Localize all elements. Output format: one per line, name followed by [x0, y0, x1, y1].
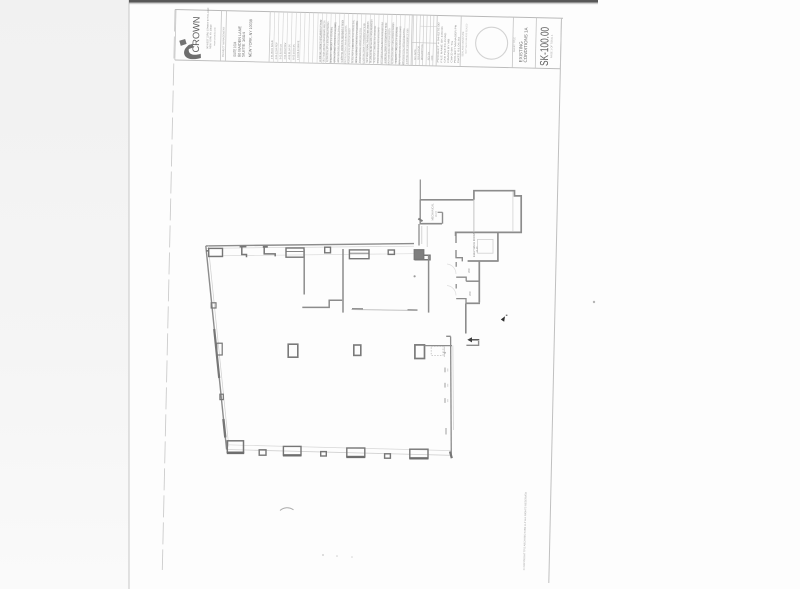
svg-text:16-08: 16-08 [477, 246, 479, 253]
svg-text:PAGE 1 OF TOTAL 1: PAGE 1 OF TOTAL 1 [550, 34, 554, 58]
svg-text:SEAL AND SIGNATURE: SEAL AND SIGNATURE [461, 31, 465, 57]
svg-text:NO. DATE: NO. DATE [414, 49, 417, 60]
svg-text:4 02.19.04 REV: 4 02.19.04 REV [284, 42, 287, 59]
svg-text:2 01.12.04 REV: 2 01.12.04 REV [275, 42, 278, 59]
svg-text:B 03.10.04 SK: B 03.10.04 SK [292, 44, 295, 60]
svg-text:16-07: 16-07 [436, 210, 438, 217]
svg-text:3 02.02.04 CD: 3 02.02.04 CD [279, 44, 282, 60]
svg-text:1 01.05.04 ISSUE: 1 01.05.04 ISSUE [271, 40, 274, 60]
svg-text:www.crownllc.com: www.crownllc.com [213, 27, 216, 46]
svg-text:1 01.05.04 ISSUE: 1 01.05.04 ISSUE [297, 40, 300, 60]
svg-text:ELEV MACH ROOM: ELEV MACH ROOM [472, 233, 476, 257]
svg-text:NEW YORK, NY 10038: NEW YORK, NY 10038 [247, 19, 253, 57]
svg-text:NEW YORK NY 10010: NEW YORK NY 10010 [209, 24, 213, 49]
svg-text:ISSUED FOR: ISSUED FOR [418, 46, 420, 60]
svg-text:REV BY: REV BY [428, 51, 430, 60]
svg-text:DESCRIPTION: DESCRIPTION [422, 44, 424, 60]
svg-text:MECHANICAL: MECHANICAL [431, 203, 435, 221]
svg-text:WC: WC [467, 267, 471, 273]
svg-text:A 03.01.04 SK: A 03.01.04 SK [288, 44, 291, 60]
svg-text:SUITE 1604: SUITE 1604 [242, 32, 247, 57]
svg-text:DATE 01.05.04: DATE 01.05.04 [457, 36, 461, 63]
svg-text:ALL WORK SHALL CONFORM TO THE: ALL WORK SHALL CONFORM TO THE REQUIREMEN… [405, 28, 410, 64]
svg-text:WC: WC [468, 290, 472, 296]
svg-text:CHK: CHK [432, 55, 434, 60]
svg-text:CONDITIONS 1A: CONDITIONS 1A [523, 27, 529, 62]
svg-text:SHEET TITLE: SHEET TITLE [513, 37, 516, 53]
svg-text:DRAWN BY MB: DRAWN BY MB [447, 38, 451, 63]
